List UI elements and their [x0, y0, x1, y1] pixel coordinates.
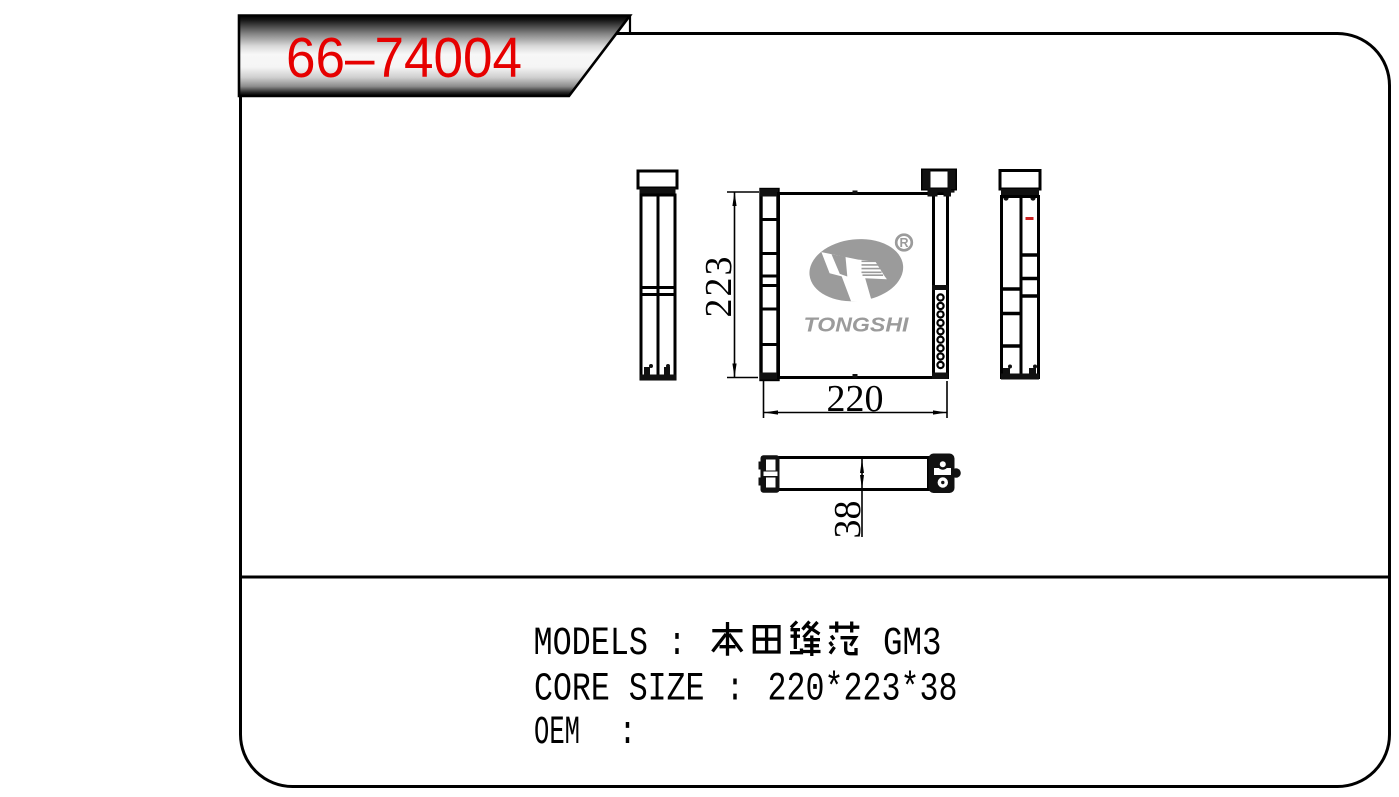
- svg-text:GM3: GM3: [883, 622, 942, 667]
- svg-text:66–74004: 66–74004: [286, 26, 522, 90]
- svg-text:R: R: [899, 236, 908, 250]
- svg-text::: :: [619, 711, 637, 756]
- svg-text:38: 38: [827, 501, 869, 539]
- svg-text:220*223*38: 220*223*38: [768, 668, 958, 713]
- svg-text:220: 220: [827, 378, 884, 420]
- svg-text:TONGSHI: TONGSHI: [804, 314, 910, 337]
- svg-text:MODELS: MODELS: [534, 622, 649, 667]
- svg-text:223: 223: [698, 255, 740, 318]
- svg-text::: :: [668, 622, 686, 667]
- svg-text:OEM: OEM: [534, 711, 580, 756]
- svg-text:CORE SIZE: CORE SIZE: [534, 668, 705, 713]
- svg-text::: :: [726, 668, 744, 713]
